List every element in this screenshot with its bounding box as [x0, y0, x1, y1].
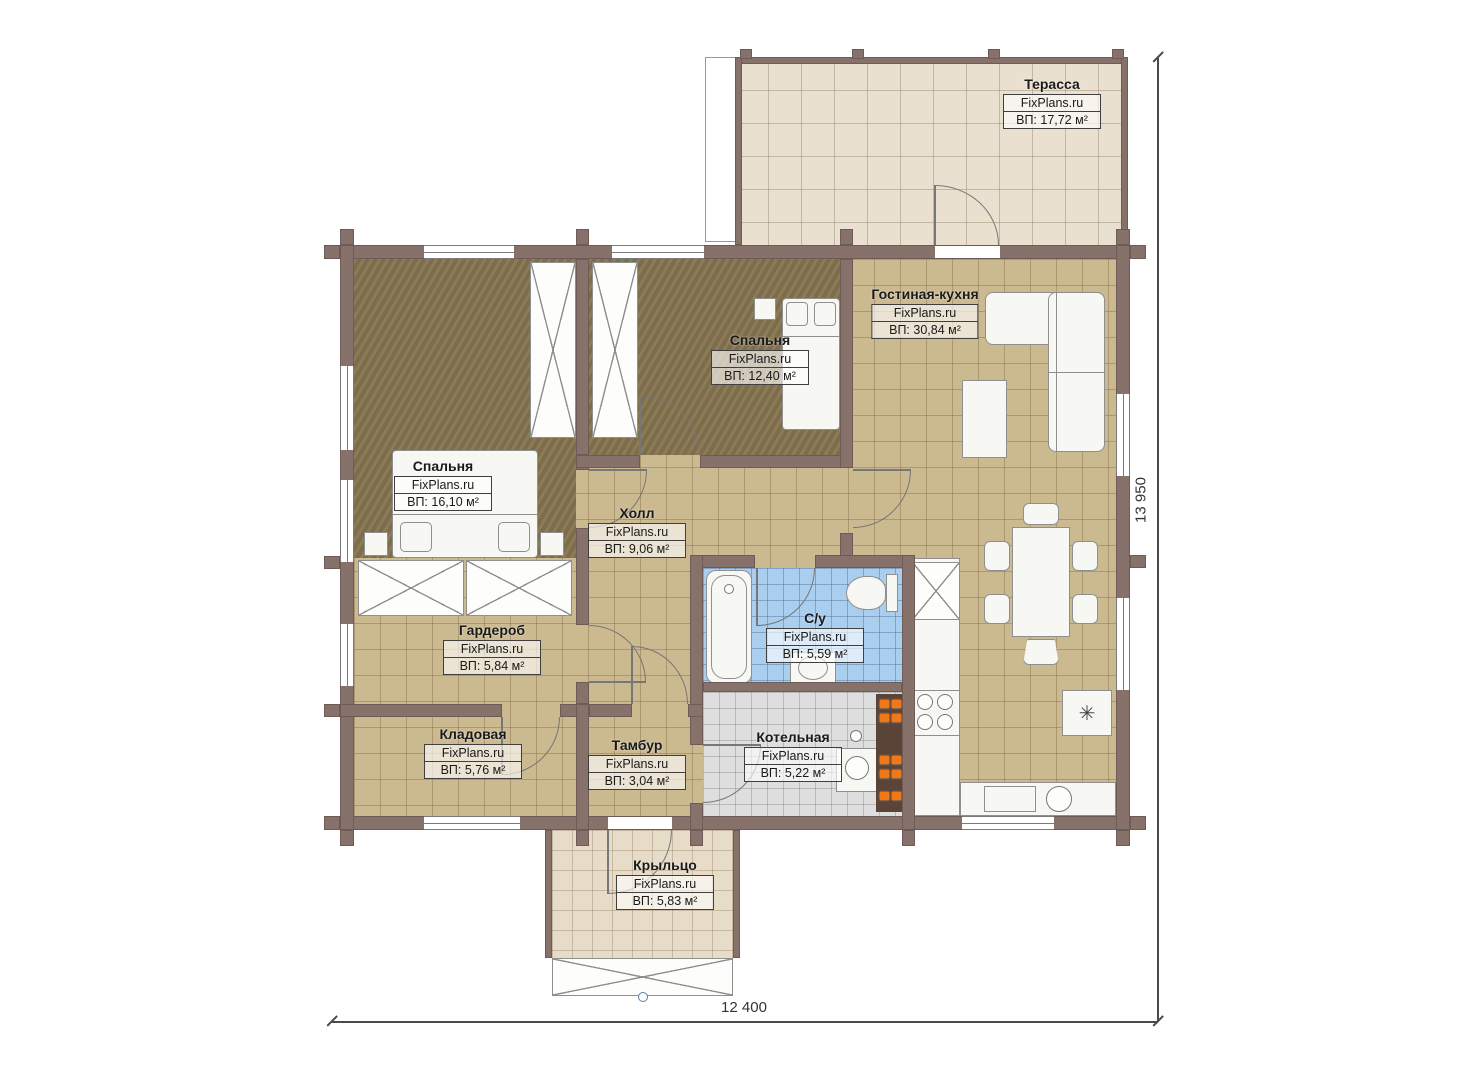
stove-burner: [917, 714, 933, 730]
washing-machine-drum: [845, 756, 869, 780]
room-label-bedroom2: Спальня FixPlans.ru ВП: 12,40 м²: [711, 332, 809, 385]
log-end: [340, 830, 354, 846]
hob-icon: ✳: [1062, 690, 1112, 736]
wall-right: [1116, 245, 1130, 830]
room-name: Спальня: [711, 332, 809, 348]
watermark-box: FixPlans.ru: [744, 747, 842, 765]
room-label-storage: Кладовая FixPlans.ru ВП: 5,76 м²: [424, 726, 522, 779]
room-area: ВП: 30,84 м²: [871, 322, 978, 339]
wall-tambur-top: [589, 704, 632, 717]
heater-cell: [892, 756, 901, 764]
log-end: [840, 229, 853, 245]
log-end: [324, 816, 340, 830]
sofa-cushion-line: [1048, 372, 1105, 373]
bedroom1-pillow: [498, 522, 530, 552]
terrace-door-opening: [935, 246, 1000, 258]
bedroom1-nightstand: [364, 532, 388, 556]
room-label-bedroom1: Спальня FixPlans.ru ВП: 16,10 м²: [394, 458, 492, 511]
bedroom2-pillow: [814, 302, 836, 326]
room-label-boiler: Котельная FixPlans.ru ВП: 5,22 м²: [744, 729, 842, 782]
fridge: [912, 562, 960, 620]
terrace-post: [988, 49, 1000, 59]
room-label-porch: Крыльцо FixPlans.ru ВП: 5,83 м²: [616, 857, 714, 910]
window-living-right-2: [1116, 598, 1130, 690]
bedroom2-nightstand: [754, 298, 776, 320]
watermark-box: FixPlans.ru: [871, 304, 978, 322]
bathtub-drain: [724, 584, 734, 594]
toilet-bowl: [846, 576, 886, 610]
wall-corridor-left: [576, 682, 589, 704]
window-bedroom2-top: [612, 245, 704, 259]
terrace-wall-right: [1121, 57, 1128, 245]
bedroom1-nightstand: [540, 532, 564, 556]
room-area: ВП: 5,22 м²: [744, 765, 842, 782]
dimension-line-bottom: [332, 1021, 1158, 1023]
room-name: Спальня: [394, 458, 492, 474]
log-end: [324, 245, 340, 259]
living-door-leaf: [853, 469, 911, 471]
room-area: ВП: 5,76 м²: [424, 762, 522, 779]
wall-bathroom-top: [815, 555, 915, 568]
dining-chair: [1023, 503, 1059, 525]
terrace-wall-left: [735, 57, 742, 245]
watermark-box: FixPlans.ru: [1003, 94, 1101, 112]
room-area: ВП: 17,72 м²: [1003, 112, 1101, 129]
heater-cell: [880, 700, 889, 708]
wall-bath-boiler-divider: [703, 682, 902, 692]
room-name: Гостиная-кухня: [871, 286, 978, 302]
window-storage-bottom: [424, 816, 520, 830]
dining-chair: [984, 594, 1010, 624]
room-area: ВП: 12,40 м²: [711, 368, 809, 385]
room-label-terrace: Терасса FixPlans.ru ВП: 17,72 м²: [1003, 76, 1101, 129]
watermark-box: FixPlans.ru: [588, 755, 686, 773]
dimension-height-label: 13 950: [1133, 477, 1150, 523]
room-name: Гардероб: [443, 622, 541, 638]
bathroom-door-leaf: [756, 568, 758, 626]
room-name: Тамбур: [588, 737, 686, 753]
room-label-hall: Холл FixPlans.ru ВП: 9,06 м²: [588, 505, 686, 558]
terrace-post: [852, 49, 864, 59]
room-area: ВП: 3,04 м²: [588, 773, 686, 790]
log-end: [324, 704, 340, 717]
coffee-table: [962, 380, 1007, 458]
log-end: [1130, 816, 1146, 830]
room-label-living: Гостиная-кухня FixPlans.ru ВП: 30,84 м²: [871, 286, 978, 339]
watermark-box: FixPlans.ru: [394, 476, 492, 494]
bedroom1-door-leaf: [589, 469, 647, 471]
window-living-right-1: [1116, 394, 1130, 476]
heater-cell: [892, 700, 901, 708]
dining-chair: [1023, 639, 1059, 665]
dimension-line-right: [1157, 57, 1159, 1022]
log-end: [576, 229, 589, 245]
wall-bathroom-left: [690, 803, 703, 830]
heater-cell: [892, 770, 901, 778]
log-end: [902, 830, 915, 846]
log-end: [576, 830, 589, 846]
terrace-post: [1112, 49, 1124, 59]
room-name: Терасса: [1003, 76, 1101, 92]
heater-cell: [892, 714, 901, 722]
log-end: [1116, 229, 1130, 245]
room-area: ВП: 9,06 м²: [588, 541, 686, 558]
level-marker: [638, 992, 648, 1002]
window-bedroom1-top: [424, 245, 514, 259]
floor-plan-canvas: ✳ Терасса FixPlans.ru ВП: 17,72 м² Гости…: [0, 0, 1474, 1080]
bedroom1-closet: [530, 262, 576, 438]
bedroom1-bed-blanket-line: [392, 514, 538, 515]
heater-cell: [880, 770, 889, 778]
hall-closet: [466, 560, 572, 616]
room-name: Холл: [588, 505, 686, 521]
dining-chair: [1072, 541, 1098, 571]
terrace-door-leaf: [934, 185, 936, 245]
room-label-tambur: Тамбур FixPlans.ru ВП: 3,04 м²: [588, 737, 686, 790]
log-end: [324, 556, 340, 569]
terrace-side-walkway: [705, 57, 739, 242]
heater-cell: [880, 792, 889, 800]
porch-door-opening: [608, 817, 672, 829]
hall-closet: [358, 560, 464, 616]
log-end: [690, 830, 703, 846]
heater-cell: [892, 792, 901, 800]
dining-table: [1012, 527, 1070, 637]
window-wardrobe-left: [340, 624, 354, 686]
watermark-box: FixPlans.ru: [616, 875, 714, 893]
porch-door-leaf: [607, 830, 609, 894]
stove-burner: [917, 694, 933, 710]
stove-burner: [937, 714, 953, 730]
wall-under-bedroom2: [576, 455, 640, 468]
wall-living-separator: [840, 259, 853, 468]
wall-bathroom-right: [902, 555, 915, 830]
heater-cell: [880, 714, 889, 722]
heater-cell: [880, 756, 889, 764]
room-name: Кладовая: [424, 726, 522, 742]
dishwasher: [984, 786, 1036, 812]
kitchen-sink: [1046, 786, 1072, 812]
room-name: Крыльцо: [616, 857, 714, 873]
terrace-post: [740, 49, 752, 59]
room-area: ВП: 5,83 м²: [616, 893, 714, 910]
window-bedroom1-left-2: [340, 480, 354, 562]
terrace-wall-top: [735, 57, 1128, 64]
wall-wardrobe-storage: [340, 704, 502, 717]
boiler-unit: [850, 730, 862, 742]
bedroom1-pillow: [400, 522, 432, 552]
toilet-tank: [886, 574, 898, 612]
watermark-box: FixPlans.ru: [766, 628, 864, 646]
watermark-box: FixPlans.ru: [588, 523, 686, 541]
room-area: ВП: 5,84 м²: [443, 658, 541, 675]
log-end: [1116, 830, 1130, 846]
window-kitchen-bottom: [962, 816, 1054, 830]
dining-chair: [1072, 594, 1098, 624]
log-end: [1130, 555, 1146, 568]
log-end: [1130, 245, 1146, 259]
porch-wall-right: [733, 830, 740, 958]
room-label-bathroom: С/у FixPlans.ru ВП: 5,59 м²: [766, 610, 864, 663]
dining-chair: [984, 541, 1010, 571]
room-area: ВП: 5,59 м²: [766, 646, 864, 663]
watermark-box: FixPlans.ru: [443, 640, 541, 658]
room-area: ВП: 16,10 м²: [394, 494, 492, 511]
room-label-wardrobe: Гардероб FixPlans.ru ВП: 5,84 м²: [443, 622, 541, 675]
log-end: [340, 229, 354, 245]
bedroom2-pillow: [786, 302, 808, 326]
watermark-box: FixPlans.ru: [424, 744, 522, 762]
room-name: Котельная: [744, 729, 842, 745]
window-bedroom1-left-1: [340, 366, 354, 450]
porch-steps: [552, 958, 733, 996]
stove-burner: [937, 694, 953, 710]
watermark-box: FixPlans.ru: [711, 350, 809, 368]
wall-bedrooms-separator: [576, 259, 589, 455]
porch-wall-left: [545, 830, 552, 958]
wall-under-bedroom2: [700, 455, 853, 468]
bedroom2-door-leaf: [639, 395, 641, 455]
tambur-door-leaf: [631, 646, 633, 704]
wall-tambur-top: [688, 704, 703, 717]
bedroom2-closet: [592, 262, 638, 438]
room-name: С/у: [766, 610, 864, 626]
dimension-width-label: 12 400: [721, 999, 767, 1016]
